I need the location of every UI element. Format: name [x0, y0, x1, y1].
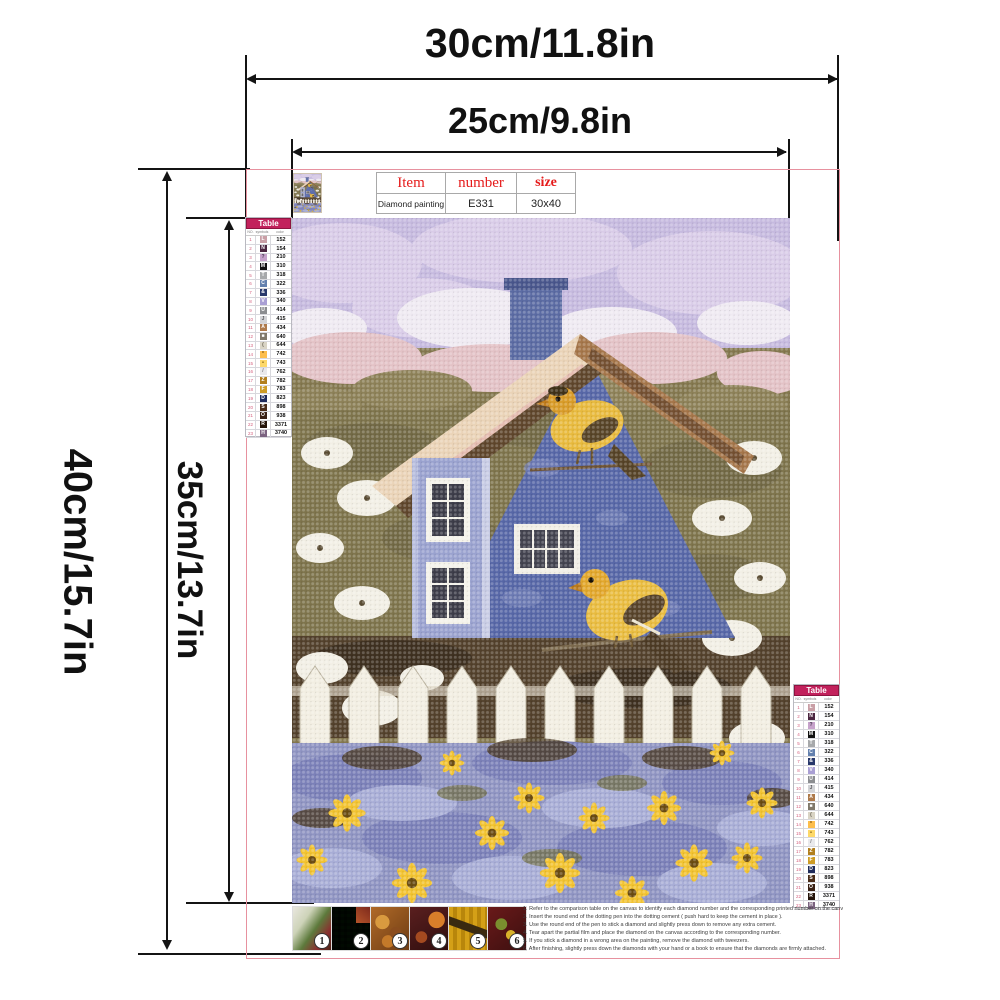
dmc-code: 310 — [819, 731, 839, 737]
symbol-swatch: L — [804, 703, 819, 711]
color-table-row: 17Z782 — [794, 847, 839, 856]
row-number: 14 — [246, 350, 256, 358]
symbol-glyph: O — [808, 884, 815, 891]
color-table-row: 15•743 — [794, 829, 839, 838]
symbol-swatch: Z — [256, 377, 271, 385]
symbol-swatch: O — [256, 412, 271, 420]
symbol-glyph: R — [808, 893, 815, 900]
color-table-row: 6C322 — [794, 748, 839, 757]
step-thumbnail-5: 5 — [449, 907, 487, 950]
row-number: 10 — [794, 784, 804, 792]
step-number-badge: 2 — [353, 933, 369, 949]
symbol-glyph: N — [808, 713, 815, 720]
color-table-row: 7&336 — [246, 289, 291, 298]
symbol-swatch: ? — [256, 254, 271, 262]
color-table-row: 4M310 — [246, 262, 291, 271]
row-number: 12 — [794, 802, 804, 810]
dmc-code: 322 — [271, 281, 291, 287]
row-number: 8 — [794, 766, 804, 774]
arrowhead-left-icon — [292, 147, 302, 157]
color-table-row: 10J415 — [246, 315, 291, 324]
step-thumbnail-2: 2 — [332, 907, 370, 950]
color-table-row: 13(644 — [794, 811, 839, 820]
dmc-code: 823 — [819, 866, 839, 872]
instructions-text: 1. Refer to the comparison table on the … — [523, 905, 843, 954]
symbol-swatch: J — [804, 784, 819, 792]
color-table-row: 9U414 — [794, 775, 839, 784]
symbol-glyph: * — [808, 821, 815, 828]
dmc-code: 336 — [819, 758, 839, 764]
symbol-glyph: H — [260, 430, 267, 437]
color-table-row: 20S898 — [794, 874, 839, 883]
color-legend-table-left: TableNO.symbolscolor1L1522N1543?2104M310… — [245, 217, 292, 437]
dmc-code: 640 — [271, 334, 291, 340]
outer-height-dimension-line — [166, 180, 168, 940]
instruction-line: 4. Tear apart the partial film and place… — [523, 929, 843, 937]
color-table-row: 8V340 — [246, 298, 291, 307]
color-table-row: 21O938 — [794, 883, 839, 892]
dmc-code: 154 — [271, 246, 291, 252]
row-number: 19 — [246, 394, 256, 402]
row-number: 5 — [794, 739, 804, 747]
instruction-line: 3. Use the round end of the pen to stick… — [523, 921, 843, 929]
dmc-code: 782 — [271, 378, 291, 384]
symbol-swatch: N — [804, 712, 819, 720]
symbol-glyph: J — [808, 785, 815, 792]
row-number: 17 — [246, 377, 256, 385]
color-table-row: 4M310 — [794, 730, 839, 739]
step-thumbnail-4: 4 — [410, 907, 448, 950]
symbol-glyph: ( — [808, 812, 815, 819]
color-table-row: 17Z782 — [246, 377, 291, 386]
row-number: 2 — [246, 245, 256, 253]
row-number: 10 — [246, 315, 256, 323]
color-table-columns: NO.symbolscolor — [794, 696, 839, 703]
symbol-swatch: T — [256, 271, 271, 279]
symbol-glyph: N — [260, 245, 267, 252]
arrowhead-up-icon — [162, 171, 172, 181]
row-number: 7 — [246, 289, 256, 297]
color-legend-table-right: TableNO.symbolscolor1L1522N1543?2104M310… — [793, 684, 840, 908]
symbol-swatch: A — [256, 324, 271, 332]
symbol-glyph: ■ — [808, 803, 815, 810]
row-number: 11 — [246, 324, 256, 332]
row-number: 12 — [246, 333, 256, 341]
symbol-glyph: O — [260, 412, 267, 419]
column-header: NO. — [246, 230, 255, 234]
symbol-swatch: ■ — [256, 333, 271, 341]
symbol-swatch: O — [804, 883, 819, 891]
row-number: 22 — [794, 892, 804, 900]
arrowhead-left-icon — [246, 74, 256, 84]
dmc-code: 3371 — [819, 893, 839, 899]
color-table-row: 15•743 — [246, 359, 291, 368]
row-number: 21 — [246, 412, 256, 420]
color-table-row: 3?210 — [794, 721, 839, 730]
symbol-glyph: D — [808, 866, 815, 873]
symbol-glyph: Z — [808, 848, 815, 855]
color-table-row: 5T318 — [246, 271, 291, 280]
product-dimension-image: 30cm/11.8in 25cm/9.8in 40cm/15.7in 35cm/… — [0, 0, 1000, 1000]
inner-height-label: 35cm/13.7in — [169, 461, 209, 659]
step-number-badge: 1 — [314, 933, 330, 949]
color-table-title: Table — [246, 218, 291, 229]
info-value-item: Diamond painting — [377, 194, 446, 214]
symbol-swatch: H — [256, 430, 271, 438]
symbol-glyph: / — [808, 839, 815, 846]
dmc-code: 210 — [819, 722, 839, 728]
dmc-code: 640 — [819, 803, 839, 809]
symbol-swatch: D — [256, 394, 271, 402]
dmc-code: 823 — [271, 395, 291, 401]
extension-line — [186, 217, 252, 219]
symbol-glyph: V — [260, 298, 267, 305]
row-number: 9 — [794, 775, 804, 783]
symbol-swatch: F — [256, 386, 271, 394]
color-table-columns: NO.symbolscolor — [246, 229, 291, 236]
item-info-table: Item number size Diamond painting E331 3… — [376, 172, 576, 214]
symbol-swatch: U — [804, 775, 819, 783]
symbol-swatch: V — [256, 298, 271, 306]
row-number: 6 — [246, 280, 256, 288]
symbol-glyph: V — [808, 767, 815, 774]
symbol-glyph: C — [260, 280, 267, 287]
dmc-code: 154 — [819, 713, 839, 719]
symbol-glyph: & — [808, 758, 815, 765]
symbol-glyph: ? — [808, 722, 815, 729]
symbol-swatch: Z — [804, 847, 819, 855]
color-table-row: 21O938 — [246, 412, 291, 421]
color-table-row: 6C322 — [246, 280, 291, 289]
row-number: 15 — [794, 829, 804, 837]
symbol-glyph: • — [260, 360, 267, 367]
row-number: 13 — [794, 811, 804, 819]
color-table-row: 23H3740 — [246, 430, 291, 439]
symbol-swatch: C — [804, 748, 819, 756]
dmc-code: 318 — [819, 740, 839, 746]
symbol-swatch: S — [804, 874, 819, 882]
dmc-code: 336 — [271, 290, 291, 296]
dmc-code: 3371 — [271, 422, 291, 428]
symbol-glyph: T — [260, 272, 267, 279]
row-number: 9 — [246, 306, 256, 314]
row-number: 3 — [794, 721, 804, 729]
color-table-row: 10J415 — [794, 784, 839, 793]
inner-height-dimension-line — [228, 229, 230, 892]
row-number: 16 — [246, 368, 256, 376]
symbol-glyph: U — [808, 776, 815, 783]
symbol-swatch: M — [804, 730, 819, 738]
step-thumbnail-6: 6 — [488, 907, 526, 950]
dmc-code: 415 — [271, 316, 291, 322]
outer-height-label: 40cm/15.7in — [55, 449, 100, 676]
arrowhead-down-icon — [162, 940, 172, 950]
step-thumbnail-1: 1 — [293, 907, 331, 950]
symbol-glyph: / — [260, 368, 267, 375]
symbol-glyph: T — [808, 740, 815, 747]
symbol-glyph: * — [260, 351, 267, 358]
color-table-title: Table — [794, 685, 839, 696]
arrowhead-up-icon — [224, 220, 234, 230]
symbol-glyph: • — [808, 830, 815, 837]
dmc-code: 318 — [271, 272, 291, 278]
dmc-code: 898 — [271, 404, 291, 410]
symbol-swatch: V — [804, 766, 819, 774]
color-table-row: 22R3371 — [794, 892, 839, 901]
symbol-glyph: L — [260, 236, 267, 243]
row-number: 1 — [246, 236, 256, 244]
row-number: 22 — [246, 421, 256, 429]
row-number: 4 — [794, 730, 804, 738]
step-number-badge: 4 — [431, 933, 447, 949]
instruction-line: 6. After finishing, slightly press down … — [523, 945, 843, 953]
column-header: NO. — [794, 697, 803, 701]
symbol-glyph: A — [808, 794, 815, 801]
row-number: 3 — [246, 254, 256, 262]
color-table-row: 12■640 — [246, 333, 291, 342]
symbol-swatch: N — [256, 245, 271, 253]
color-table-row: 13(644 — [246, 342, 291, 351]
symbol-swatch: ( — [256, 342, 271, 350]
row-number: 14 — [794, 820, 804, 828]
color-table-row: 5T318 — [794, 739, 839, 748]
symbol-swatch: ( — [804, 811, 819, 819]
extension-line — [138, 168, 250, 170]
dmc-code: 938 — [819, 884, 839, 890]
row-number: 13 — [246, 342, 256, 350]
row-number: 20 — [246, 403, 256, 411]
info-header-number: number — [446, 173, 517, 194]
row-number: 20 — [794, 874, 804, 882]
row-number: 15 — [246, 359, 256, 367]
symbol-glyph: & — [260, 289, 267, 296]
dmc-code: 340 — [271, 298, 291, 304]
row-number: 17 — [794, 847, 804, 855]
info-value-number: E331 — [446, 194, 517, 214]
column-header: symbols — [803, 697, 817, 701]
diamond-painting-artwork — [292, 218, 790, 903]
row-number: 19 — [794, 865, 804, 873]
symbol-swatch: R — [804, 892, 819, 900]
dmc-code: 742 — [271, 351, 291, 357]
symbol-swatch: * — [804, 820, 819, 828]
column-header: color — [269, 230, 291, 234]
step-number-badge: 3 — [392, 933, 408, 949]
symbol-glyph: D — [260, 395, 267, 402]
dmc-code: 415 — [819, 785, 839, 791]
arrowhead-down-icon — [224, 892, 234, 902]
dmc-code: 3740 — [271, 430, 291, 436]
inner-width-dimension-line — [295, 151, 786, 153]
symbol-glyph: S — [260, 404, 267, 411]
symbol-glyph: F — [808, 857, 815, 864]
color-table-row: 2N154 — [794, 712, 839, 721]
info-header-item: Item — [377, 173, 446, 194]
symbol-swatch: ■ — [804, 802, 819, 810]
dmc-code: 743 — [271, 360, 291, 366]
symbol-swatch: / — [804, 838, 819, 846]
color-table-row: 11A434 — [246, 324, 291, 333]
symbol-swatch: T — [804, 739, 819, 747]
color-table-row: 16/762 — [794, 838, 839, 847]
instruction-step-thumbnails: 123456 — [293, 907, 526, 950]
instruction-line: 5. If you stick a diamond in a wrong are… — [523, 937, 843, 945]
inner-width-label: 25cm/9.8in — [250, 100, 830, 142]
dmc-code: 762 — [819, 839, 839, 845]
outer-width-dimension-line — [249, 78, 837, 80]
row-number: 2 — [794, 712, 804, 720]
color-table-row: 9U414 — [246, 306, 291, 315]
color-table-row: 1L152 — [246, 236, 291, 245]
dmc-code: 762 — [271, 369, 291, 375]
dmc-code: 434 — [819, 794, 839, 800]
symbol-glyph: R — [260, 421, 267, 428]
dmc-code: 783 — [271, 386, 291, 392]
dmc-code: 783 — [819, 857, 839, 863]
symbol-swatch: ? — [804, 721, 819, 729]
info-value-size: 30x40 — [517, 194, 576, 214]
symbol-swatch: & — [256, 289, 271, 297]
symbol-swatch: S — [256, 403, 271, 411]
symbol-glyph: M — [260, 263, 267, 270]
symbol-glyph: J — [260, 316, 267, 323]
dmc-code: 414 — [271, 307, 291, 313]
color-table-row: 7&336 — [794, 757, 839, 766]
row-number: 4 — [246, 262, 256, 270]
step-thumbnail-3: 3 — [371, 907, 409, 950]
symbol-swatch: • — [804, 829, 819, 837]
symbol-swatch: F — [804, 856, 819, 864]
dmc-code: 340 — [819, 767, 839, 773]
dmc-code: 782 — [819, 848, 839, 854]
color-table-row: 8V340 — [794, 766, 839, 775]
arrowhead-right-icon — [777, 147, 787, 157]
dmc-code: 434 — [271, 325, 291, 331]
symbol-swatch: L — [256, 236, 271, 244]
symbol-glyph: U — [260, 307, 267, 314]
color-table-row: 16/762 — [246, 368, 291, 377]
color-table-row: 18F783 — [246, 386, 291, 395]
symbol-glyph: C — [808, 749, 815, 756]
row-number: 1 — [794, 703, 804, 711]
symbol-swatch: U — [256, 306, 271, 314]
column-header: symbols — [255, 230, 269, 234]
color-table-row: 14*742 — [794, 820, 839, 829]
symbol-glyph: F — [260, 386, 267, 393]
artwork-thumbnail — [294, 174, 321, 212]
dmc-code: 938 — [271, 413, 291, 419]
symbol-glyph: S — [808, 875, 815, 882]
symbol-glyph: ( — [260, 342, 267, 349]
row-number: 11 — [794, 793, 804, 801]
symbol-glyph: ■ — [260, 333, 267, 340]
color-table-row: 20S898 — [246, 403, 291, 412]
dmc-code: 743 — [819, 830, 839, 836]
dmc-code: 310 — [271, 263, 291, 269]
instruction-line: 1. Refer to the comparison table on the … — [523, 905, 843, 913]
dmc-code: 898 — [819, 875, 839, 881]
color-table-row: 19D823 — [246, 394, 291, 403]
info-header-size: size — [517, 173, 576, 194]
dmc-code: 152 — [819, 704, 839, 710]
row-number: 16 — [794, 838, 804, 846]
column-header: color — [817, 697, 839, 701]
symbol-swatch: & — [804, 757, 819, 765]
dmc-code: 644 — [271, 342, 291, 348]
dmc-code: 742 — [819, 821, 839, 827]
symbol-swatch: M — [256, 262, 271, 270]
color-table-row: 14*742 — [246, 350, 291, 359]
symbol-glyph: L — [808, 704, 815, 711]
symbol-swatch: J — [256, 315, 271, 323]
row-number: 7 — [794, 757, 804, 765]
dmc-code: 322 — [819, 749, 839, 755]
dmc-code: 414 — [819, 776, 839, 782]
instruction-line: 2. Insert the round end of the dotting p… — [523, 913, 843, 921]
row-number: 21 — [794, 883, 804, 891]
symbol-glyph: ? — [260, 254, 267, 261]
color-table-row: 12■640 — [794, 802, 839, 811]
symbol-swatch: C — [256, 280, 271, 288]
outer-width-label: 30cm/11.8in — [250, 20, 830, 67]
dmc-code: 210 — [271, 254, 291, 260]
symbol-swatch: * — [256, 350, 271, 358]
symbol-swatch: • — [256, 359, 271, 367]
row-number: 18 — [794, 856, 804, 864]
symbol-swatch: A — [804, 793, 819, 801]
color-table-row: 3?210 — [246, 254, 291, 263]
symbol-swatch: R — [256, 421, 271, 429]
row-number: 5 — [246, 271, 256, 279]
dmc-code: 644 — [819, 812, 839, 818]
symbol-glyph: M — [808, 731, 815, 738]
symbol-swatch: / — [256, 368, 271, 376]
dmc-code: 152 — [271, 237, 291, 243]
row-number: 23 — [246, 430, 256, 438]
symbol-glyph: A — [260, 324, 267, 331]
row-number: 18 — [246, 386, 256, 394]
step-number-badge: 5 — [470, 933, 486, 949]
symbol-glyph: Z — [260, 377, 267, 384]
color-table-row: 11A434 — [794, 793, 839, 802]
row-number: 8 — [246, 298, 256, 306]
color-table-row: 18F783 — [794, 856, 839, 865]
color-table-row: 1L152 — [794, 703, 839, 712]
symbol-swatch: D — [804, 865, 819, 873]
color-table-row: 22R3371 — [246, 421, 291, 430]
row-number: 6 — [794, 748, 804, 756]
color-table-row: 19D823 — [794, 865, 839, 874]
color-table-row: 2N154 — [246, 245, 291, 254]
